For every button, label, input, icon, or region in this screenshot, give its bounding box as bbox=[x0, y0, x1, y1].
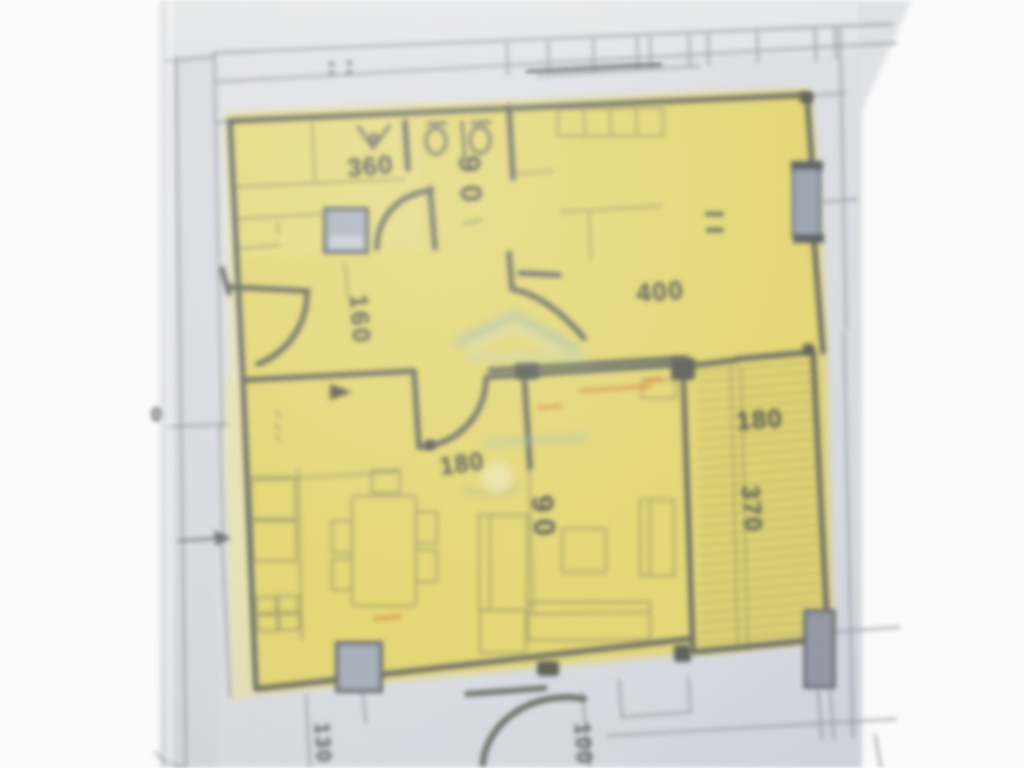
svg-text:0: 0 bbox=[151, 405, 162, 426]
